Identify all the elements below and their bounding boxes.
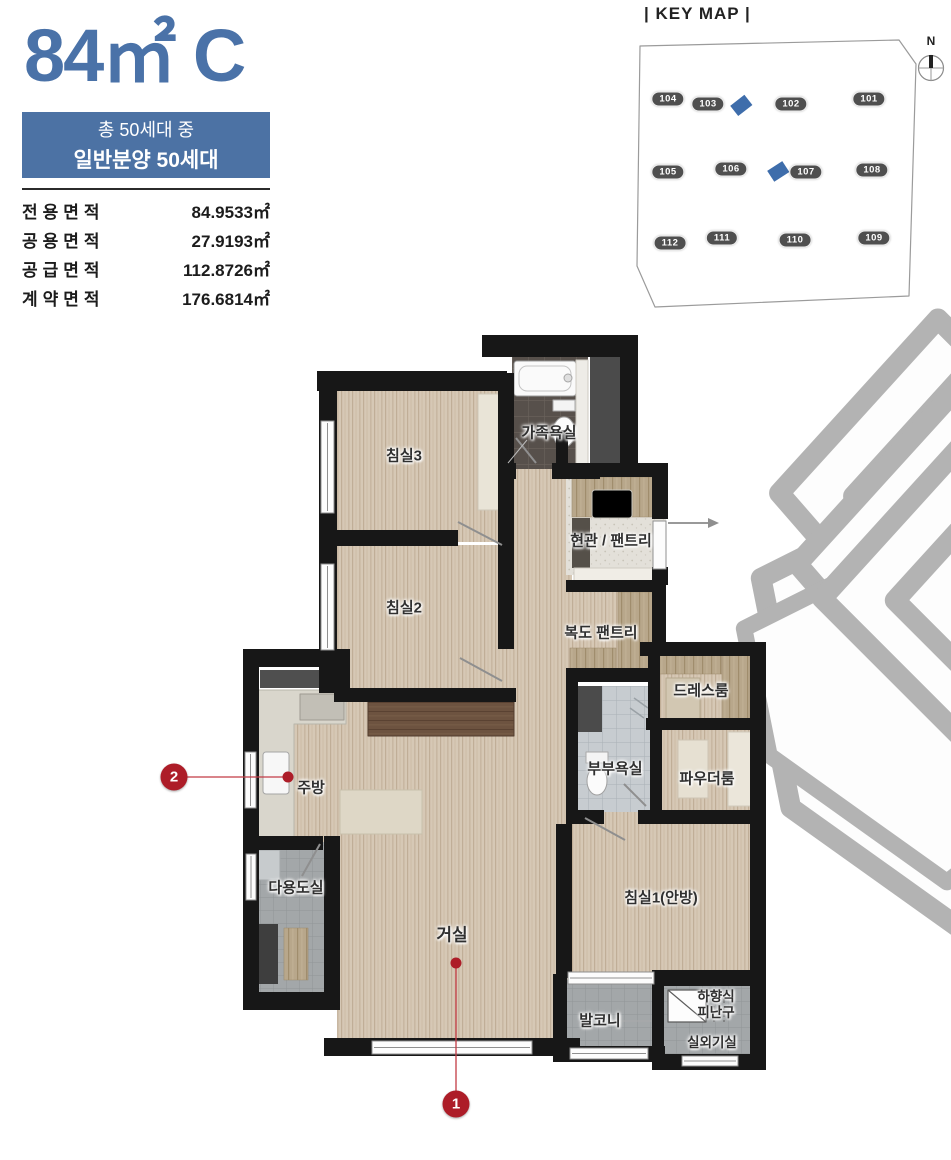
marker-2: 2 xyxy=(161,764,188,791)
area-row-label: 계약면적 xyxy=(22,285,105,310)
keymap-building-badge-101: 101 xyxy=(852,92,885,107)
area-row-label: 공급면적 xyxy=(22,256,105,281)
keymap-building-badge-106: 106 xyxy=(714,162,747,177)
room-label-evac-hatch: 하향식 피난구 xyxy=(697,989,734,1021)
room-label-corridor-pantry: 복도 팬트리 xyxy=(564,622,637,643)
marker-1: 1 xyxy=(443,1091,470,1118)
keymap-building-badge-108: 108 xyxy=(855,163,888,178)
area-table-row: 계약면적 176.6814㎡ xyxy=(22,283,270,312)
room-label-outdoor-unit: 실외기실 xyxy=(687,1031,737,1051)
keymap-building-badge-109: 109 xyxy=(857,231,890,246)
compass-north-label: N xyxy=(927,34,936,48)
area-row-value: 112.8726㎡ xyxy=(183,256,270,281)
area-table-row: 공급면적 112.8726㎡ xyxy=(22,254,270,283)
area-row-value: 84.9533㎡ xyxy=(192,198,270,223)
page-title: 84㎡ C xyxy=(24,8,244,104)
keymap-building-badge-110: 110 xyxy=(779,233,812,248)
keymap-building-badge-103: 103 xyxy=(691,97,724,112)
area-row-value: 27.9193㎡ xyxy=(192,227,270,252)
room-label-dress-room: 드레스룸 xyxy=(673,680,728,701)
keymap-building-badge-107: 107 xyxy=(789,165,822,180)
room-label-bedroom2: 침실2 xyxy=(386,597,422,618)
area-row-label: 공용면적 xyxy=(22,227,105,252)
room-label-utility: 다용도실 xyxy=(268,877,323,898)
room-label-entrance-pantry: 현관 / 팬트리 xyxy=(570,530,652,551)
keymap-building-badge-104: 104 xyxy=(651,92,684,107)
keymap-building-badge-105: 105 xyxy=(651,165,684,180)
room-label-living: 거실 xyxy=(436,921,467,946)
units-badge-line1: 총 50세대 중 xyxy=(98,116,194,142)
room-label-master-bath: 부부욕실 xyxy=(587,758,642,779)
area-row-label: 전용면적 xyxy=(22,198,105,223)
keymap-title: | KEY MAP | xyxy=(644,4,751,24)
floorplan-page: { "header": { "title": "84㎡ C", "badge":… xyxy=(0,0,951,1160)
compass-icon xyxy=(918,55,944,81)
units-badge: 총 50세대 중 일반분양 50세대 xyxy=(22,112,270,178)
area-row-value: 176.6814㎡ xyxy=(182,285,270,310)
room-label-evac-hatch-line2: 피난구 xyxy=(697,1005,734,1021)
room-label-family-bath: 가족욕실 xyxy=(521,422,576,443)
room-label-kitchen: 주방 xyxy=(297,777,325,798)
room-label-evac-hatch-line1: 하향식 xyxy=(697,989,734,1005)
room-label-bedroom3: 침실3 xyxy=(386,445,422,466)
area-table-row: 전용면적 84.9533㎡ xyxy=(22,196,270,225)
area-table: 전용면적 84.9533㎡ 공용면적 27.9193㎡ 공급면적 112.872… xyxy=(22,188,270,312)
keymap-building-badge-102: 102 xyxy=(774,97,807,112)
room-label-bedroom1: 침실1(안방) xyxy=(624,887,698,908)
room-label-powder-room: 파우더룸 xyxy=(679,768,734,789)
room-label-balcony: 발코니 xyxy=(579,1010,620,1031)
units-badge-line2: 일반분양 50세대 xyxy=(73,144,218,174)
keymap-building-badge-112: 112 xyxy=(654,236,687,251)
keymap-building-badge-111: 111 xyxy=(706,231,738,246)
area-table-row: 공용면적 27.9193㎡ xyxy=(22,225,270,254)
